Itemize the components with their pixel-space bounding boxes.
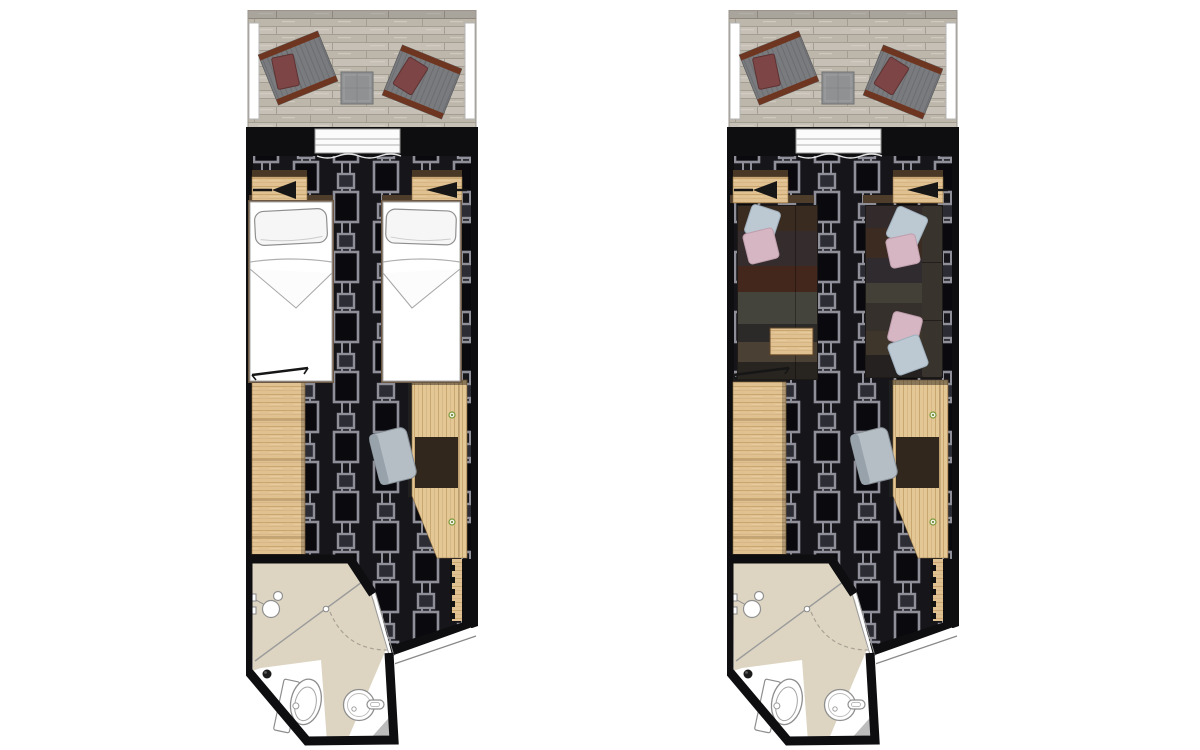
floorplan-day-configuration [727, 10, 959, 750]
floorplan-night-configuration [246, 10, 478, 750]
floorplan-canvas [0, 0, 1200, 750]
